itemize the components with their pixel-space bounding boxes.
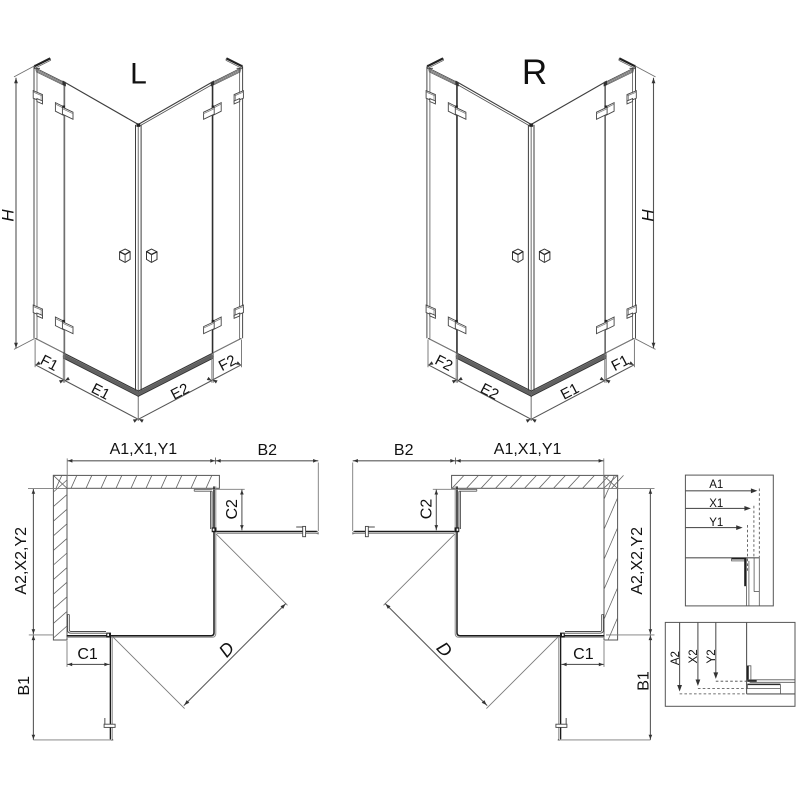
svg-text:A2,X2,Y2: A2,X2,Y2 [13, 527, 30, 595]
svg-text:H: H [0, 209, 17, 222]
svg-text:X2: X2 [688, 649, 700, 663]
svg-text:C2: C2 [224, 499, 241, 520]
svg-text:B2: B2 [258, 442, 278, 459]
svg-text:Y2: Y2 [706, 649, 718, 663]
svg-text:B2: B2 [394, 442, 414, 459]
svg-text:Y1: Y1 [709, 517, 723, 529]
svg-text:H: H [638, 209, 657, 222]
svg-text:B1: B1 [16, 676, 33, 696]
svg-text:A1: A1 [709, 479, 723, 491]
svg-text:X1: X1 [709, 498, 723, 510]
svg-text:B1: B1 [635, 671, 652, 691]
svg-text:C1: C1 [573, 646, 594, 663]
svg-text:C2: C2 [419, 499, 436, 520]
svg-text:A1,X1,Y1: A1,X1,Y1 [110, 441, 178, 458]
svg-text:A2,X2,Y2: A2,X2,Y2 [629, 527, 646, 595]
svg-text:L: L [130, 58, 147, 91]
svg-text:C1: C1 [77, 646, 98, 663]
svg-text:A1,X1,Y1: A1,X1,Y1 [494, 441, 562, 458]
svg-text:R: R [522, 53, 547, 92]
svg-text:A2: A2 [670, 651, 682, 665]
